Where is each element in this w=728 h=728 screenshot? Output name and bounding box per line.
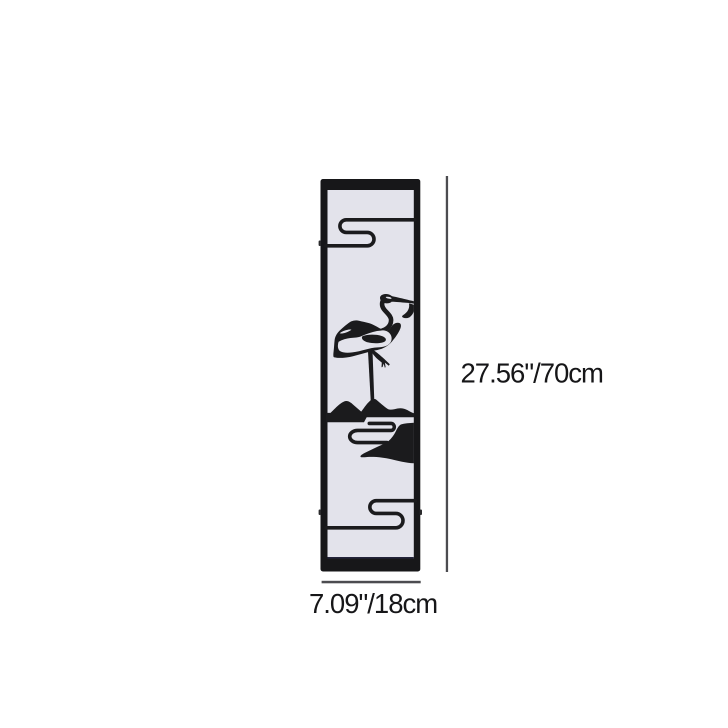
svg-text:27.56"/70cm: 27.56"/70cm (461, 358, 604, 389)
svg-text:7.09"/18cm: 7.09"/18cm (309, 588, 437, 619)
